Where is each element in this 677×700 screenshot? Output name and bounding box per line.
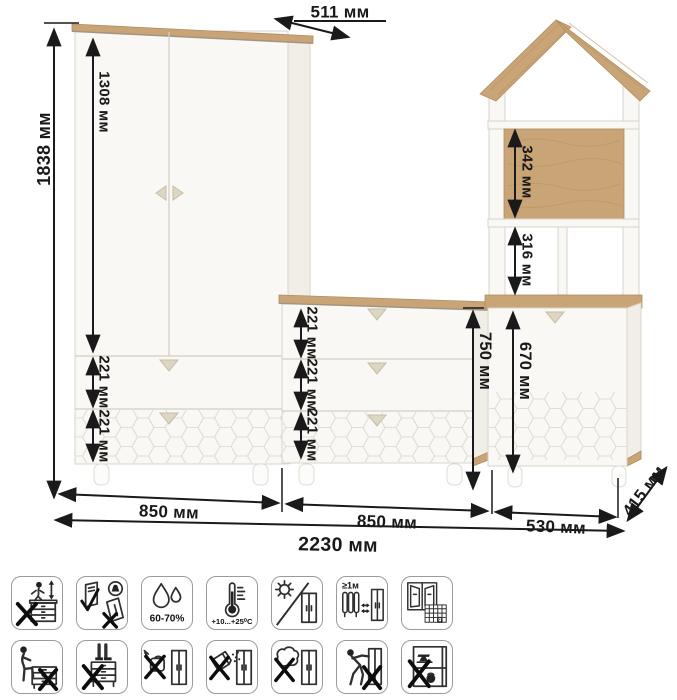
humidity-label: 60-70%: [150, 613, 185, 624]
icon-no-heavy-objects: [401, 640, 453, 694]
icon-no-moving-assembled: [76, 576, 128, 630]
icon-no-standing: [76, 640, 128, 694]
icon-no-climbing-on-furniture: [11, 576, 63, 630]
shelf-divider: [558, 227, 567, 295]
dim-tower-upper-shelf: 342 мм: [519, 145, 536, 198]
dim-top-depth: 511 мм: [310, 3, 369, 22]
dim-chest-drawer2: 221 мм: [304, 358, 321, 411]
tower-left-post: [489, 86, 505, 296]
icon-no-pouring-water: [141, 640, 193, 694]
dim-wardrobe-drawer1: 221 мм: [96, 355, 113, 408]
icon-temperature-range: +10...+25⁰C: [206, 576, 258, 630]
icon-no-direct-sunlight: [271, 576, 323, 630]
icon-no-sitting: [11, 640, 63, 694]
diagram-canvas: 511 мм 1838 мм 1308 мм 221 мм 221 мм 221…: [0, 0, 677, 565]
icon-ventilate-room: 21: [401, 576, 453, 630]
icon-no-pushing: [336, 640, 388, 694]
temperature-label: +10...+25⁰C: [211, 617, 253, 626]
calendar-day-label: 21: [437, 617, 443, 623]
dim-chest-drawer3: 221 мм: [304, 408, 321, 461]
dim-wardrobe-width: 850 мм: [139, 501, 200, 522]
dim-wardrobe-door-height: 1308 мм: [96, 71, 113, 133]
heater-distance-label: ≥1м: [342, 581, 359, 591]
icon-no-wet-cleaning: [271, 640, 323, 694]
icon-humidity-range: 60-70%: [141, 576, 193, 630]
dim-tower-width: 530 мм: [526, 516, 587, 537]
tower-right-post: [623, 86, 639, 296]
furniture-dimension-diagram: 511 мм 1838 мм 1308 мм 221 мм 221 мм 221…: [0, 0, 677, 700]
dim-chest-height: 750 мм: [476, 332, 494, 390]
dim-wardrobe-height: 1838 мм: [34, 112, 54, 186]
tower-honeycomb: [489, 392, 626, 460]
dim-tower-lower-shelf: 316 мм: [519, 233, 536, 286]
house-shelf-tower: [480, 20, 650, 487]
icon-no-abrasive-powders: [206, 640, 258, 694]
dim-total-width: 2230 мм: [298, 533, 378, 557]
dim-tower-door-height: 670 мм: [516, 342, 534, 400]
icon-keep-distance-from-heaters: ≥1м: [336, 576, 388, 630]
dim-depth: 415 мм: [619, 462, 668, 519]
roof-left-beam: [480, 20, 571, 101]
dim-wardrobe-drawer2: 221 мм: [96, 409, 113, 462]
dim-chest-width: 850 мм: [357, 511, 418, 532]
roof-right-beam: [556, 20, 650, 101]
tower-wood-band: [485, 295, 642, 308]
dim-chest-drawer1: 221 мм: [304, 306, 321, 359]
